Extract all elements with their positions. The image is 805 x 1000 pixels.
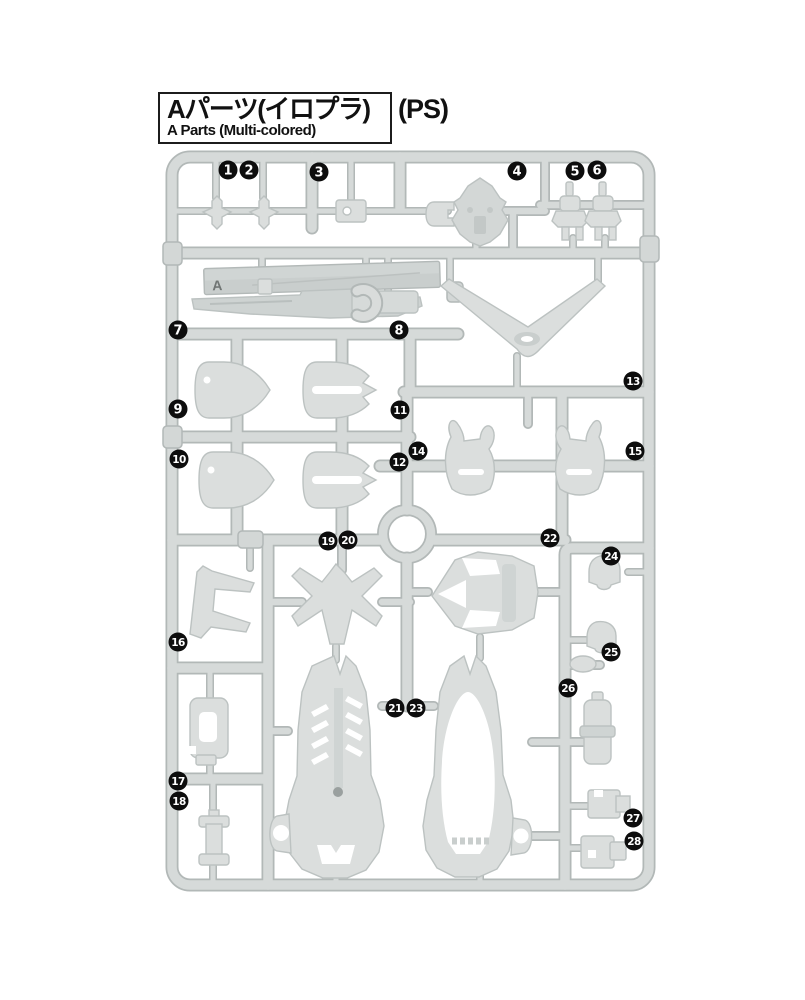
svg-text:16: 16 xyxy=(171,637,185,649)
part-number-badge: 19 xyxy=(319,532,338,551)
part-number-badge: 13 xyxy=(624,372,643,391)
part-28-silhouette xyxy=(581,836,626,868)
svg-text:17: 17 xyxy=(171,776,185,788)
part-number-badge: 22 xyxy=(541,529,560,548)
part-number-badge: 7 xyxy=(169,321,188,340)
part-number-badge: 1 xyxy=(219,161,238,180)
part-number-badge: 2 xyxy=(240,161,259,180)
part-2-silhouette xyxy=(250,196,278,229)
part-18-silhouette xyxy=(199,810,229,865)
part-12-silhouette xyxy=(303,452,376,508)
svg-text:13: 13 xyxy=(626,376,640,388)
svg-text:9: 9 xyxy=(173,403,182,418)
svg-text:11: 11 xyxy=(393,405,407,417)
part-number-badge: 24 xyxy=(602,547,621,566)
part-26-silhouette xyxy=(580,692,615,764)
svg-text:18: 18 xyxy=(172,796,186,808)
svg-text:7: 7 xyxy=(173,324,182,339)
runner-sprue-diagram: A xyxy=(0,0,805,1000)
part-5-silhouette xyxy=(552,182,588,240)
part-number-badge: 12 xyxy=(390,453,409,472)
svg-text:4: 4 xyxy=(512,165,521,180)
part-11-silhouette xyxy=(303,362,376,418)
part-number-badge: 4 xyxy=(508,162,527,181)
svg-text:8: 8 xyxy=(394,324,403,339)
part-number-badge: 27 xyxy=(624,809,643,828)
part-number-badge: 6 xyxy=(588,161,607,180)
runner-ring xyxy=(383,510,431,558)
part-4-silhouette xyxy=(452,178,508,246)
svg-text:1: 1 xyxy=(223,164,232,179)
part-19-20-silhouette xyxy=(292,564,382,644)
part-number-badge: 25 xyxy=(602,643,621,662)
runner-letter: A xyxy=(212,277,223,293)
svg-text:26: 26 xyxy=(561,683,575,695)
svg-text:25: 25 xyxy=(604,647,618,659)
part-15-silhouette xyxy=(556,421,605,495)
part-number-badge: 23 xyxy=(407,699,426,718)
part-14-silhouette xyxy=(445,421,494,495)
part-26-gate-tab xyxy=(570,656,596,672)
svg-text:23: 23 xyxy=(409,703,423,715)
svg-text:5: 5 xyxy=(570,165,579,180)
svg-text:20: 20 xyxy=(341,535,355,547)
svg-text:10: 10 xyxy=(172,454,186,466)
part-number-badge: 26 xyxy=(559,679,578,698)
svg-text:28: 28 xyxy=(627,836,641,848)
part-16-silhouette xyxy=(190,566,254,638)
part-number-badge: 28 xyxy=(625,832,644,851)
svg-text:22: 22 xyxy=(543,533,557,545)
svg-text:21: 21 xyxy=(388,703,402,715)
part-27-silhouette xyxy=(588,790,630,818)
svg-text:15: 15 xyxy=(628,446,642,458)
part-number-badge: 16 xyxy=(169,633,188,652)
part-number-badge: 17 xyxy=(169,772,188,791)
part-number-badge: 15 xyxy=(626,442,645,461)
part-10-silhouette xyxy=(199,452,274,508)
part-9-silhouette xyxy=(195,362,270,418)
svg-text:2: 2 xyxy=(244,164,253,179)
part-21-silhouette xyxy=(270,656,384,878)
part-1-silhouette xyxy=(203,196,231,229)
part-3-silhouette xyxy=(336,200,366,222)
part-number-badge: 8 xyxy=(390,321,409,340)
part-6-silhouette xyxy=(585,182,621,240)
manual-page: Aパーツ(イロプラ) A Parts (Multi-colored) (PS) xyxy=(0,0,805,1000)
svg-text:12: 12 xyxy=(392,457,406,469)
svg-text:6: 6 xyxy=(592,164,601,179)
part-17-silhouette xyxy=(188,698,228,765)
svg-text:3: 3 xyxy=(314,166,323,181)
part-number-badge: 5 xyxy=(566,162,585,181)
svg-text:24: 24 xyxy=(604,551,618,563)
part-23-silhouette xyxy=(423,656,532,877)
part-22-silhouette xyxy=(432,552,538,634)
svg-text:27: 27 xyxy=(626,813,640,825)
part-number-badge: 11 xyxy=(391,401,410,420)
svg-text:14: 14 xyxy=(411,446,425,458)
part-number-badge: 21 xyxy=(386,699,405,718)
part-number-badge: 10 xyxy=(170,450,189,469)
part-number-badge: 18 xyxy=(170,792,189,811)
svg-text:19: 19 xyxy=(321,536,335,548)
part-number-badge: 3 xyxy=(310,163,329,182)
part-number-badge: 20 xyxy=(339,531,358,550)
part-number-badge: 14 xyxy=(409,442,428,461)
part-13-silhouette xyxy=(441,279,605,357)
part-number-badge: 9 xyxy=(169,400,188,419)
